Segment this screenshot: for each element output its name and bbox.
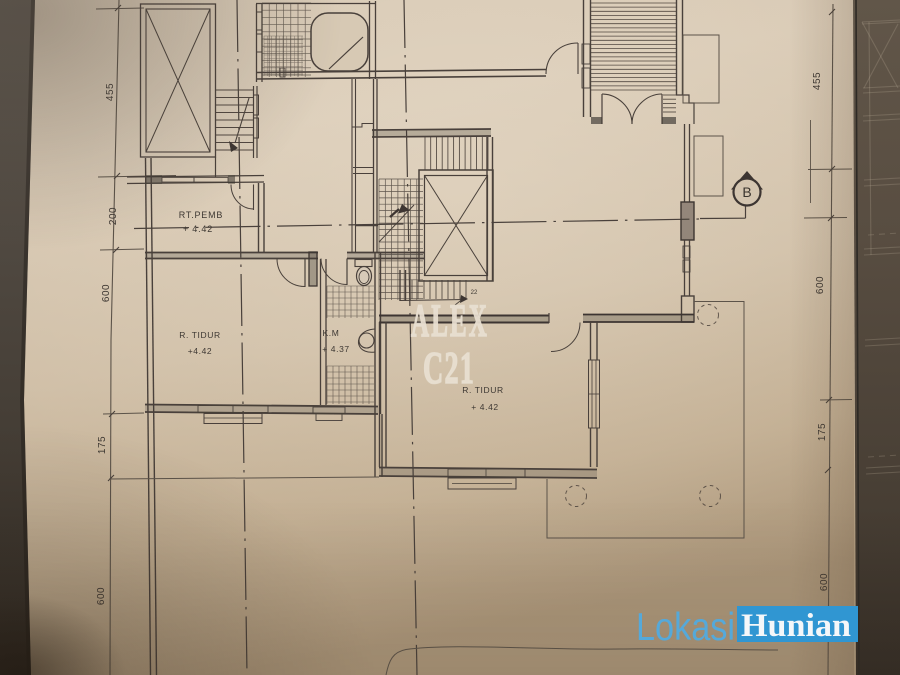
svg-text:C21: C21 — [423, 342, 475, 393]
svg-text:Hunian: Hunian — [741, 608, 851, 644]
svg-text:ALEX: ALEX — [411, 295, 489, 347]
svg-text:Lokasi: Lokasi — [636, 606, 735, 649]
